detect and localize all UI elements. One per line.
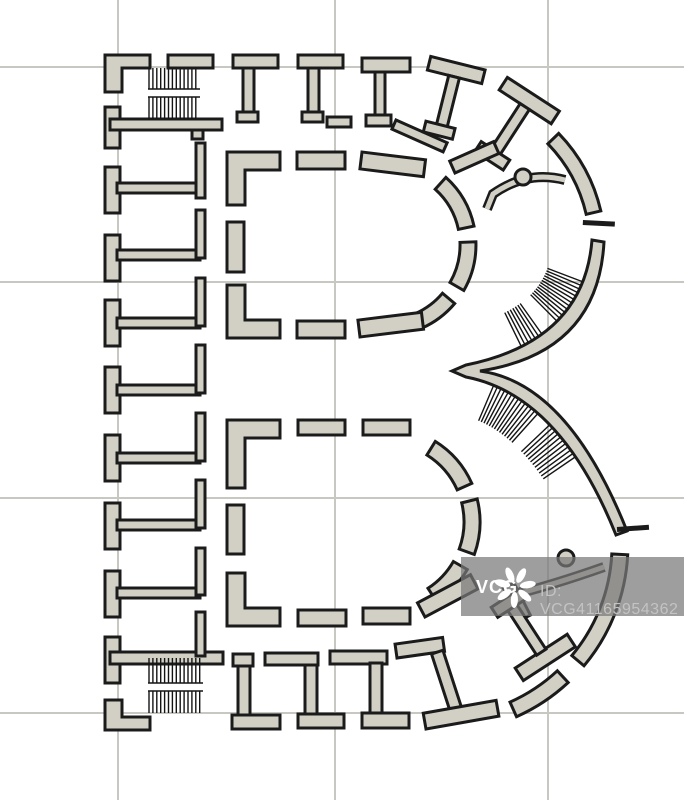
watermark: VCG ID: VCG41165954362 bbox=[461, 557, 684, 616]
waist-junction-wall bbox=[452, 240, 627, 535]
floor-plan-letter-b-drawing bbox=[0, 0, 684, 800]
bottom-arm-south-wing bbox=[232, 525, 649, 729]
top-bowl-inner-rooms bbox=[227, 142, 565, 338]
watermark-id-text: ID: VCG41165954362 bbox=[540, 583, 684, 619]
spine-west-wing bbox=[105, 55, 223, 730]
watermark-flower-icon bbox=[492, 564, 538, 610]
stock-floor-plan-image: VCG ID: VCG41165954362 bbox=[0, 0, 684, 800]
